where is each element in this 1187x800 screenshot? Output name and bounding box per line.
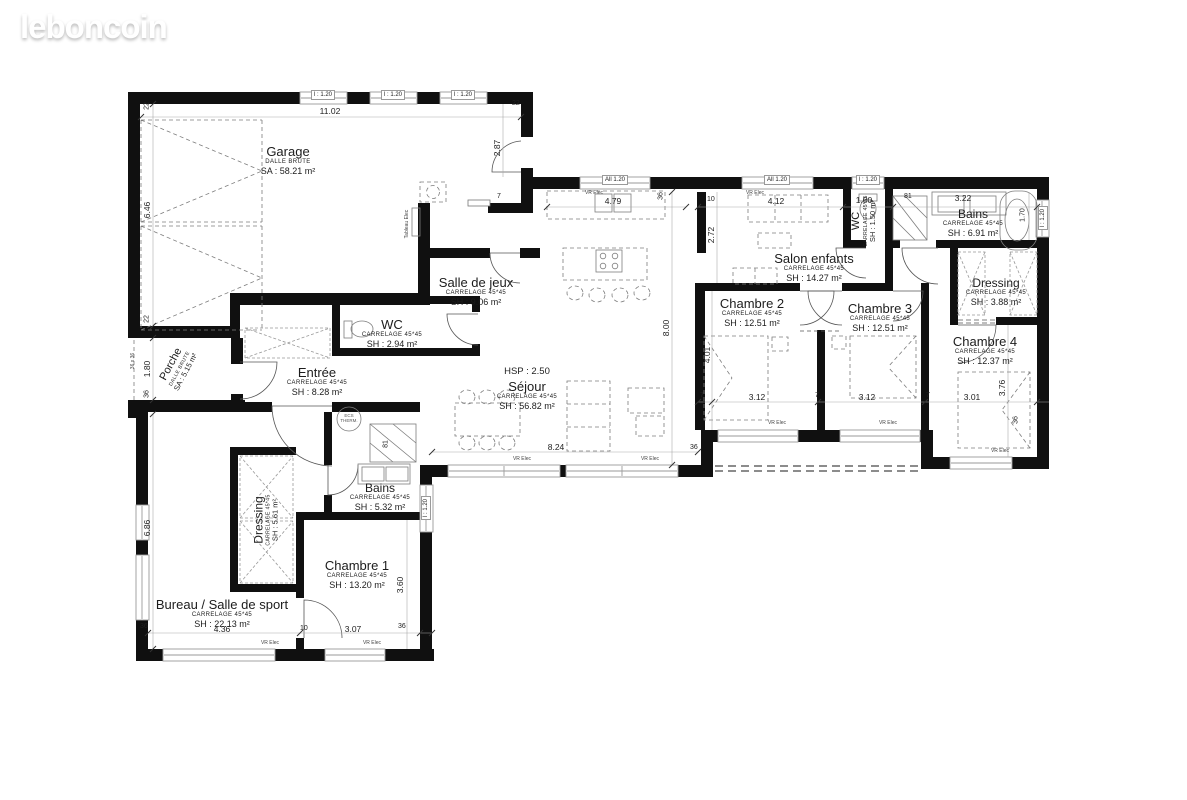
room-label-garage: Garage DALLE BRUTE SA : 58.21 m² — [261, 145, 316, 176]
dim-marker-22c: 22 — [144, 315, 151, 323]
room-label-salle-de-jeux: Salle de jeux CARRELAGE 45*45 SH : 9.06 … — [439, 276, 513, 307]
dim-tub-length: 1.70 — [1020, 208, 1027, 222]
ceiling-height-label: HSP : 2.50 — [504, 366, 550, 377]
window-label-bains: l : 1.20 — [1038, 206, 1048, 230]
dim-bureau-depth: 6.86 — [142, 520, 152, 537]
room-label-bains-jour: Bains CARRELAGE 45*45 SH : 5.32 m² — [350, 482, 410, 512]
dim-salon-depth: 2.72 — [706, 227, 716, 244]
vr-elec-label-4: VR Elec — [879, 420, 897, 426]
room-label-chambre1: Chambre 1 CARRELAGE 45*45 SH : 13.20 m² — [325, 559, 389, 590]
dim-porche-depth: 1.80 — [142, 361, 152, 378]
dim-garage-depth: 6.46 — [142, 202, 152, 219]
roof-overhang-lines — [715, 466, 919, 471]
vr-elec-label-8: VR Elec — [746, 190, 764, 196]
dim-entry-step: 2.87 — [492, 140, 502, 157]
dim-marker-36f: 36 — [1013, 416, 1020, 424]
window-label-garage3: l : 1.20 — [451, 90, 475, 100]
window-label-kitchen: All 1.20 — [602, 175, 628, 185]
dim-marker-36e: 36 — [658, 192, 665, 200]
room-label-chambre4: Chambre 4 CARRELAGE 45*45 SH : 12.37 m² — [953, 335, 1017, 366]
dim-salon-bay: 4.12 — [768, 196, 785, 206]
bed-chambre2-icon — [704, 336, 788, 420]
window-label-garage2: l : 1.20 — [381, 90, 405, 100]
dim-bath-counter: 3.22 — [955, 193, 972, 203]
vr-elec-label-1: VR Elec — [513, 456, 531, 462]
vr-elec-label-7: VR Elec — [585, 190, 603, 196]
dim-wc-width: 1.00 — [856, 195, 873, 205]
dim-marker-10b: 10 — [707, 196, 715, 203]
dim-marker-7b: 7 — [815, 392, 819, 399]
dim-bureau-width: 4.36 — [214, 624, 231, 634]
vr-elec-label-9: VR Elec — [991, 448, 1009, 454]
dim-marker-22a: 22 — [144, 102, 151, 110]
room-label-entree: Entrée CARRELAGE 45*45 SH : 8.28 m² — [287, 366, 347, 397]
vr-elec-label-5: VR Elec — [261, 640, 279, 646]
dim-ch3-width: 3.12 — [859, 392, 876, 402]
dim-marker-7c: 7 — [926, 392, 930, 399]
room-label-chambre3: Chambre 3 CARRELAGE 45*45 SH : 12.51 m² — [848, 302, 912, 333]
dim-sejour-depth: 8.00 — [661, 320, 671, 337]
dim-kitchen-bay: 4.79 — [605, 196, 622, 206]
dim-marker-36a: 36 — [144, 390, 151, 398]
dim-ch1-depth: 3.60 — [395, 577, 405, 594]
room-label-wc-jour: WC CARRELAGE 45*45 SH : 2.94 m² — [362, 318, 422, 349]
room-label-dressing-nuit: Dressing CARRELAGE 45*45 SH : 3.88 m² — [966, 277, 1026, 307]
dim-marker-7a: 7 — [700, 392, 704, 399]
vr-elec-label-6: VR Elec — [363, 640, 381, 646]
dim-marker-81a: 81 — [904, 193, 912, 200]
kitchen-island-icon — [563, 248, 650, 302]
bed-chambre3-icon — [832, 336, 916, 398]
dim-sejour-width: 8.24 — [548, 442, 565, 452]
garage-utility-icon — [420, 182, 446, 202]
dim-marker-22b: 22 — [512, 100, 520, 107]
water-heater-label: ECS THERM. — [338, 414, 360, 424]
dim-marker-10a: 10 — [300, 625, 308, 632]
sofa-icon — [567, 381, 664, 451]
dim-ch2-width: 3.12 — [749, 392, 766, 402]
bed-chambre4-icon — [958, 372, 1030, 448]
dim-marker-81b: 81 — [383, 440, 390, 448]
window-label-garage1: l : 1.20 — [311, 90, 335, 100]
vr-elec-label-3: VR Elec — [768, 420, 786, 426]
dim-marker-36c: 36 — [398, 623, 406, 630]
room-label-sejour: Séjour CARRELAGE 45*45 SH : 56.82 m² — [497, 380, 557, 411]
vr-elec-label-2: VR Elec — [641, 456, 659, 462]
dim-marker-36b: 36 — [140, 623, 148, 630]
window-label-salon: All 1.20 — [764, 175, 790, 185]
window-label-chambre1: l : 1.20 — [421, 496, 431, 520]
leboncoin-logo: leboncoin — [20, 8, 167, 46]
floor-plan-drawing — [0, 0, 1187, 800]
dim-post-size: 36 x 36 — [130, 353, 136, 369]
dim-ch1-width: 3.07 — [345, 624, 362, 634]
room-label-dressing-jour: Dressing CARRELAGE 45*45 SH : 5.61 m² — [252, 494, 279, 545]
room-label-chambre2: Chambre 2 CARRELAGE 45*45 SH : 12.51 m² — [720, 297, 784, 328]
dim-ch4-depth: 3.76 — [997, 380, 1007, 397]
dim-marker-7d: 7 — [497, 193, 501, 200]
dim-ch4-width: 3.01 — [964, 392, 981, 402]
floor-plan-page: leboncoin Garage DALLE BRUTE SA : 58.21 … — [0, 0, 1187, 800]
room-label-salon-enfants: Salon enfants CARRELAGE 45*45 SH : 14.27… — [774, 252, 854, 283]
dim-garage-width: 11.02 — [320, 106, 341, 116]
window-label-wc: l : 1.20 — [856, 175, 880, 185]
dim-ch2-depth: 4.01 — [702, 347, 712, 364]
room-label-bains-nuit: Bains CARRELAGE 45*45 SH : 6.91 m² — [943, 208, 1003, 238]
electrical-panel-label: Tableau Elec — [404, 210, 410, 239]
dim-marker-36d: 36 — [690, 444, 698, 451]
